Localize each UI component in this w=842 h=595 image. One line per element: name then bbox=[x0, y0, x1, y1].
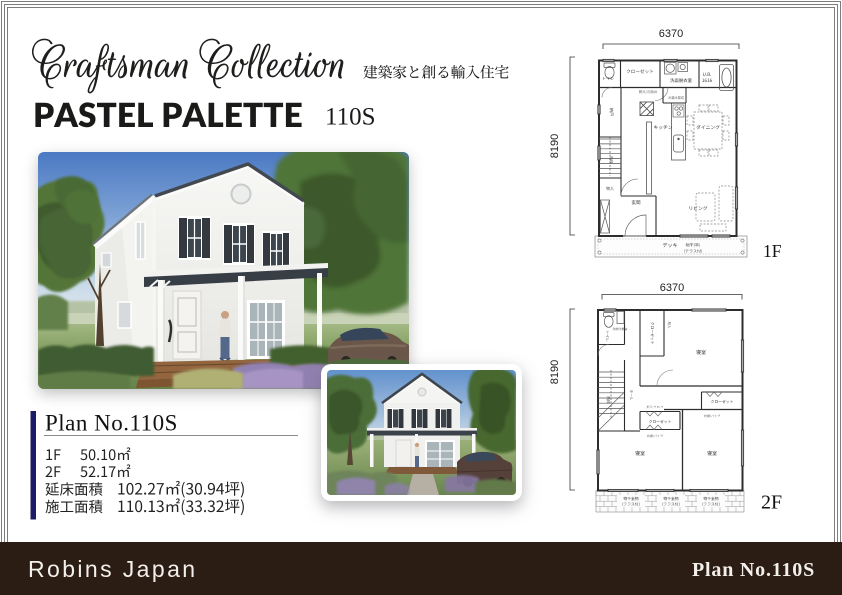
svg-text:1F: 1F bbox=[763, 241, 782, 261]
svg-text:Plan No.110S: Plan No.110S bbox=[45, 411, 178, 436]
svg-text:110S: 110S bbox=[325, 104, 375, 131]
svg-text:8190: 8190 bbox=[549, 134, 561, 158]
svg-text:6370: 6370 bbox=[660, 282, 684, 294]
svg-text:8190: 8190 bbox=[549, 360, 561, 384]
svg-text:2F: 2F bbox=[761, 492, 782, 514]
svg-text:6370: 6370 bbox=[659, 28, 683, 40]
